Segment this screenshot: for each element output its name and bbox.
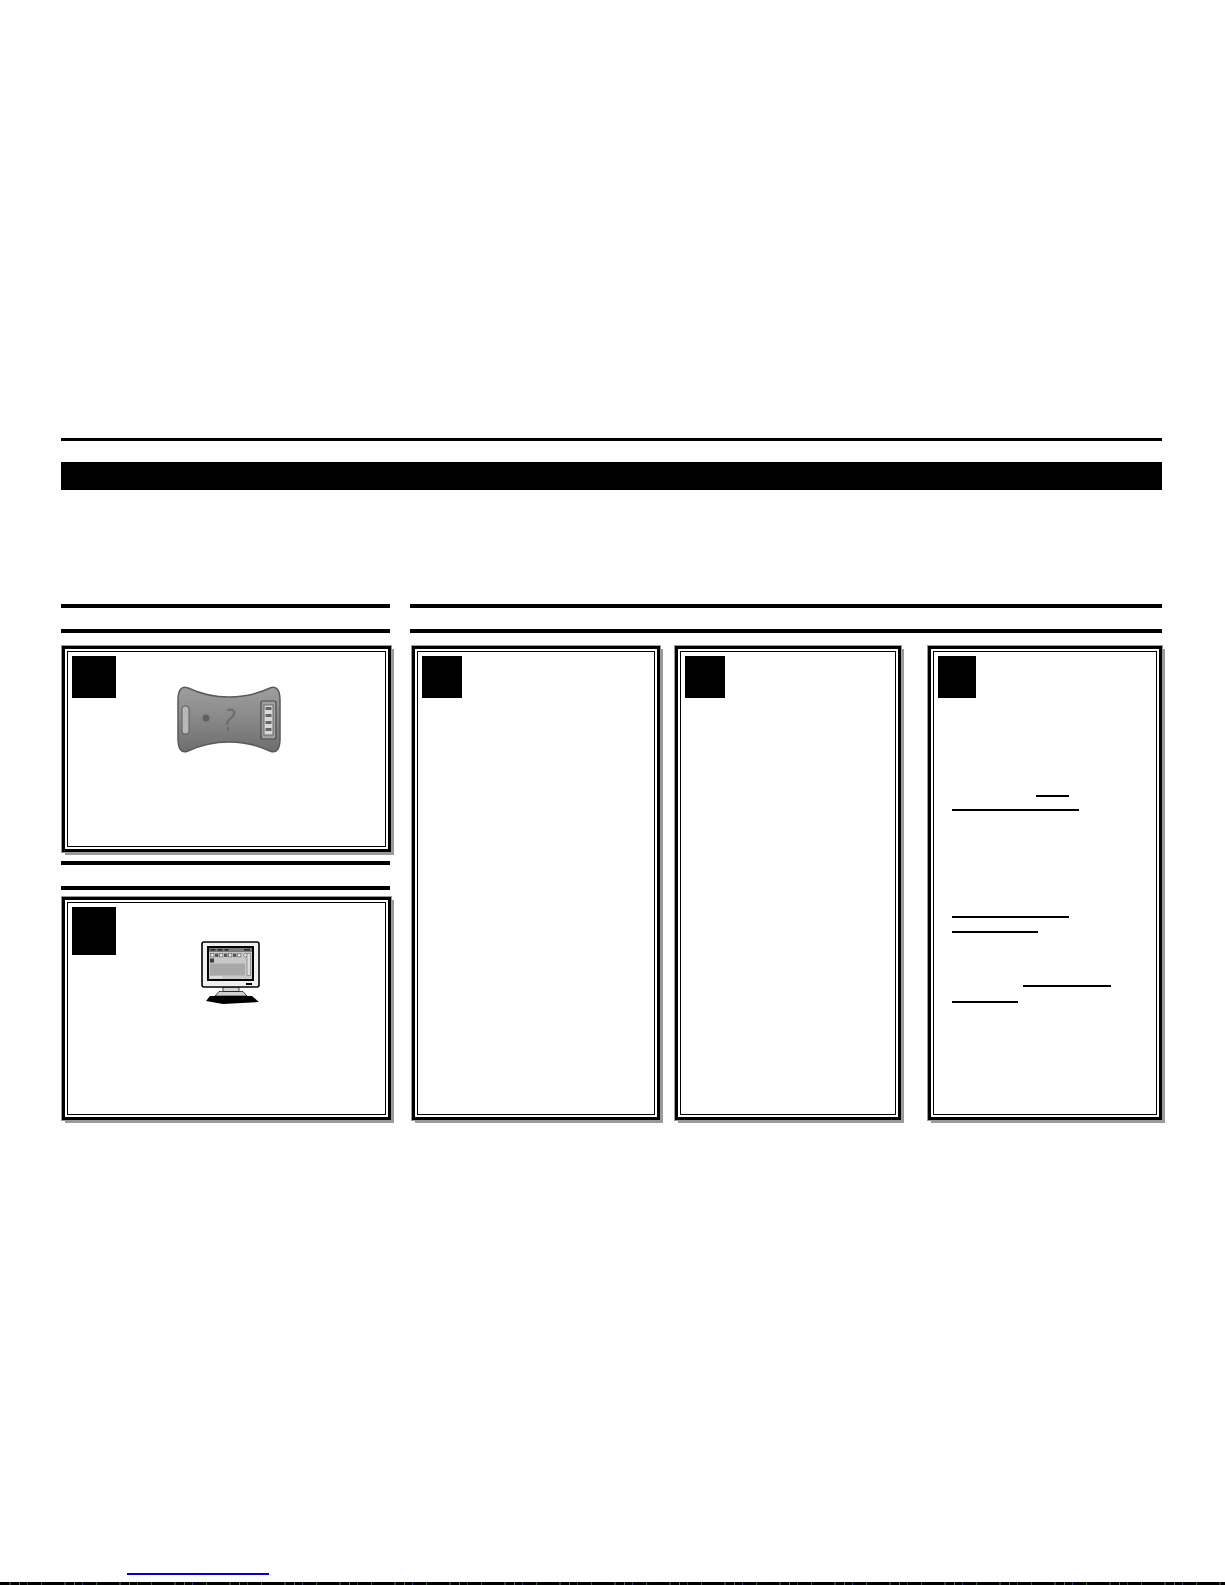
step-box-3-inner [417,651,655,1115]
underline-mark-6 [952,1001,1018,1003]
step-box-4 [675,646,901,1120]
step-box-1-inner [67,651,386,847]
document-page: { "page": { "background_color": "#ffffff… [0,0,1225,1585]
step-box-3 [412,646,660,1120]
step-box-5-inner [933,651,1157,1115]
footer-link-underline[interactable] [127,1573,269,1575]
step-box-2-inner [67,902,386,1115]
step-box-1 [62,646,391,852]
step-number-square-1 [72,656,116,698]
step-box-4-inner [680,651,896,1115]
usb-adapter-photo [176,680,282,759]
step-number-square-3 [422,656,462,698]
right-section-rule-bottom [410,629,1162,633]
step-number-square-5 [938,656,976,698]
underline-mark-4 [952,931,1038,933]
right-section-rule-top [410,604,1162,608]
left-section-rule-bottom [61,629,390,633]
left-section-rule-top [61,604,390,608]
underline-mark-5 [1023,985,1111,987]
title-bar [61,462,1162,490]
step-box-2 [62,897,391,1120]
underline-mark-2 [952,809,1079,811]
step-box-5 [928,646,1162,1120]
crt-monitor-clipart [201,941,263,1009]
underline-mark-3 [952,916,1069,918]
top-rule [61,438,1162,441]
step-number-square-4 [685,656,725,698]
left-divider-rule-top [61,861,390,865]
step-number-square-2 [72,907,116,955]
underline-mark-1 [1036,795,1069,797]
left-divider-rule-bottom [61,886,390,890]
